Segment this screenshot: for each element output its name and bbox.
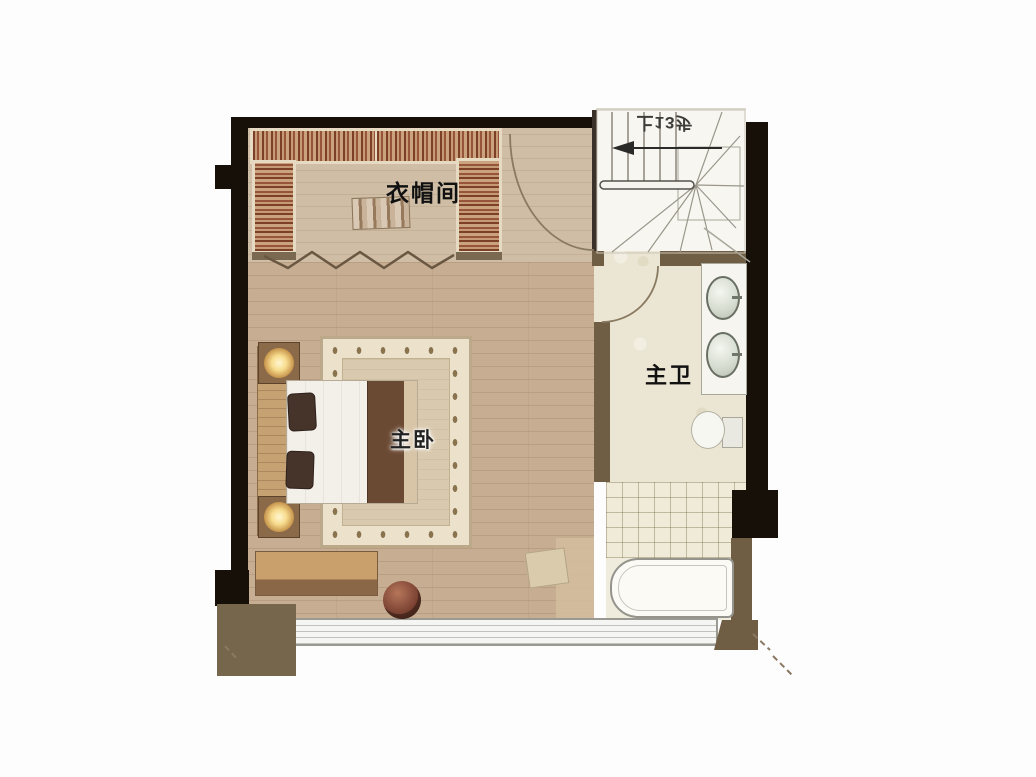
- plan-linework: [0, 0, 1036, 777]
- master-bedroom-label: 主卧: [390, 424, 436, 454]
- master-bathroom-label: 主卫: [645, 358, 693, 390]
- bathroom-door-swing: [602, 266, 658, 322]
- stair-handrail: [600, 181, 694, 189]
- cloakroom-label: 衣帽间: [386, 174, 461, 208]
- bedroom-door-swing: [510, 134, 594, 250]
- stair-direction-arrow-icon: [612, 141, 634, 155]
- stair-steps-note: 上13步: [622, 112, 708, 137]
- floor-plan: 衣帽间 主卧 主卫 上13步: [0, 0, 1036, 777]
- closet-divider-zigzag: [264, 252, 454, 268]
